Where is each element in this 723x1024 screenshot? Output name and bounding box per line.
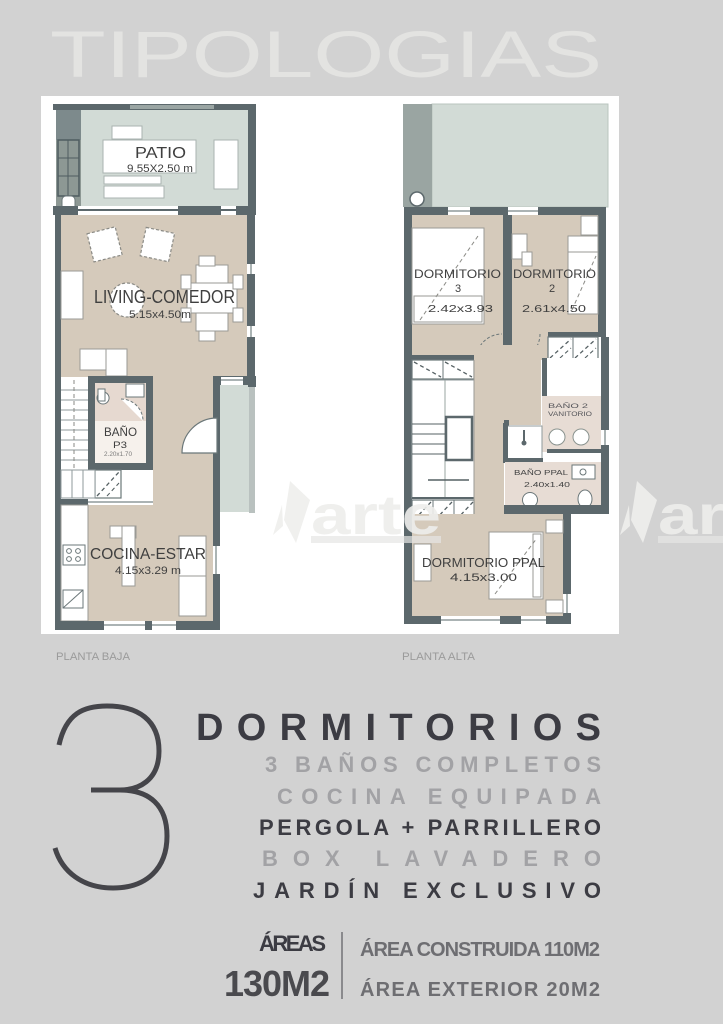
- svg-text:ÁREAS: ÁREAS: [259, 931, 326, 956]
- svg-text:PATIO: PATIO: [135, 145, 186, 162]
- svg-text:4.15x3.00: 4.15x3.00: [450, 572, 517, 584]
- svg-text:ÁREA EXTERIOR 20M2: ÁREA EXTERIOR 20M2: [360, 978, 600, 1001]
- svg-text:130M2: 130M2: [224, 963, 330, 1004]
- svg-text:2.20x1.70: 2.20x1.70: [104, 452, 133, 458]
- svg-text:VANITORIO: VANITORIO: [548, 412, 592, 418]
- svg-text:PLANTA ALTA: PLANTA ALTA: [402, 651, 476, 663]
- svg-text:LIVING-COMEDOR: LIVING-COMEDOR: [94, 287, 235, 307]
- svg-text:2.42x3.93: 2.42x3.93: [428, 303, 493, 315]
- svg-text:4.15x3.29 m: 4.15x3.29 m: [115, 565, 181, 577]
- svg-text:BAÑO PPAL: BAÑO PPAL: [514, 468, 568, 477]
- svg-text:PERGOLA + PARRILLERO: PERGOLA + PARRILLERO: [259, 815, 601, 840]
- svg-text:DORMITORIO: DORMITORIO: [513, 267, 596, 281]
- svg-text:5.15x4.50m: 5.15x4.50m: [129, 309, 191, 321]
- svg-text:2.61x4.50: 2.61x4.50: [522, 303, 586, 315]
- svg-text:COCINA-ESTAR: COCINA-ESTAR: [90, 546, 206, 563]
- svg-text:2.40x1.40: 2.40x1.40: [524, 482, 570, 489]
- svg-text:P3: P3: [113, 440, 127, 450]
- svg-text:3: 3: [455, 283, 461, 295]
- svg-text:DORMITORIOS: DORMITORIOS: [196, 707, 601, 749]
- svg-text:2: 2: [549, 283, 555, 295]
- svg-text:BAÑO 2: BAÑO 2: [548, 403, 589, 410]
- svg-text:PLANTA BAJA: PLANTA BAJA: [56, 651, 131, 663]
- svg-text:DORMITORIO PPAL: DORMITORIO PPAL: [422, 556, 545, 570]
- svg-text:DORMITORIO: DORMITORIO: [414, 267, 501, 281]
- svg-text:9.55X2.50 m: 9.55X2.50 m: [127, 163, 193, 175]
- svg-text:BAÑO: BAÑO: [104, 426, 137, 439]
- svg-text:JARDÍN EXCLUSIVO: JARDÍN EXCLUSIVO: [253, 878, 601, 903]
- svg-text:ÁREA CONSTRUIDA 110M2: ÁREA CONSTRUIDA 110M2: [360, 938, 600, 961]
- svg-text:TIPOLOGIAS: TIPOLOGIAS: [50, 17, 602, 91]
